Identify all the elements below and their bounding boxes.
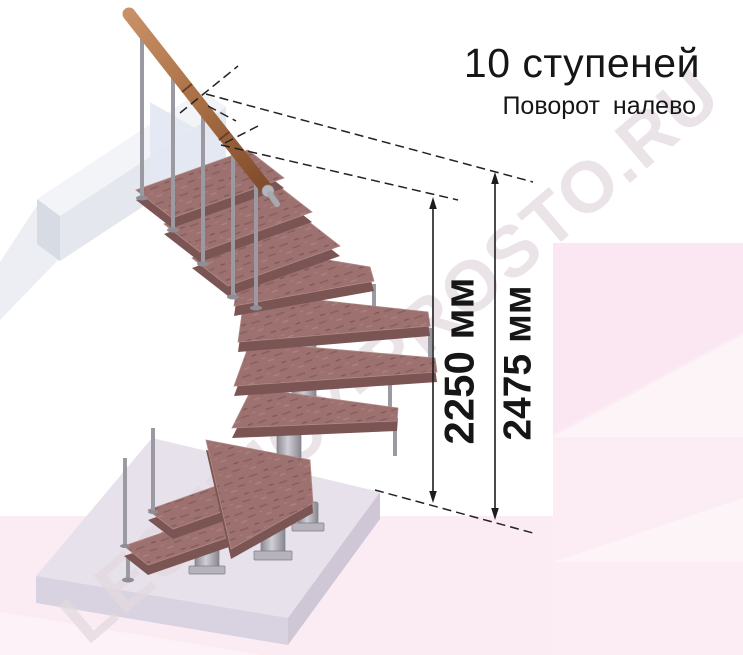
- base-plate: [189, 566, 225, 574]
- base-plate: [292, 523, 324, 531]
- title-block: 10 ступеней Поворот налево: [464, 42, 700, 121]
- base-plate: [254, 551, 292, 560]
- page-title: 10 ступеней: [464, 42, 700, 85]
- page-subtitle: Поворот налево: [464, 92, 700, 121]
- dimension-label-staircase-height: 2250 мм: [436, 277, 483, 444]
- staircase-diagram-page: LESTNICY-PROSTO.RU: [0, 0, 743, 655]
- rod-foot: [122, 578, 134, 583]
- dimension-label-total-height: 2475 мм: [497, 285, 540, 440]
